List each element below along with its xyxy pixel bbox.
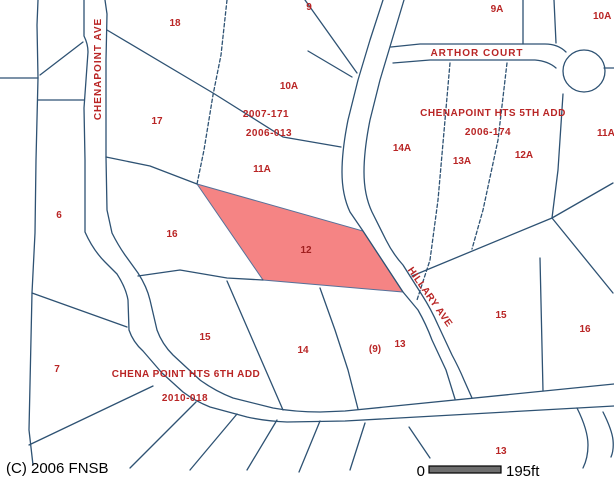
parcel-boundary bbox=[190, 414, 237, 470]
parcel-label-15-right: 15 bbox=[495, 310, 507, 321]
parcel-boundary bbox=[107, 30, 341, 147]
parcel-boundary bbox=[32, 293, 127, 327]
parcel-label-9-paren: (9) bbox=[369, 344, 381, 355]
road-edge bbox=[393, 60, 556, 68]
plat-label-2007-171: 2007-171 bbox=[243, 109, 289, 120]
parcel-label-10a-edge: 10A bbox=[593, 11, 611, 22]
scale-bar-rect bbox=[429, 466, 501, 473]
cul-de-sac bbox=[563, 50, 605, 92]
parcel-boundary bbox=[29, 386, 153, 445]
parcel-label-9a: 9A bbox=[491, 4, 504, 15]
parcel-label-16-left: 16 bbox=[166, 229, 178, 240]
parcel-label-6: 6 bbox=[56, 210, 62, 221]
subdivision-label-6th-add: CHENA POINT HTS 6TH ADD bbox=[112, 369, 261, 380]
parcel-boundary bbox=[130, 402, 196, 468]
scale-bar-zero: 0 bbox=[417, 463, 425, 480]
parcel-boundary bbox=[577, 408, 588, 468]
parcel-label-14a: 14A bbox=[393, 143, 411, 154]
parcel-map: 18 9 9A 10A 10A 17 11A 6 16 12 14A 13A 1… bbox=[0, 0, 614, 480]
parcel-label-15-left: 15 bbox=[199, 332, 211, 343]
street-label-chenapoint-ave: CHENAPOINT AVE bbox=[93, 18, 104, 120]
parcel-label-13-bottom: 13 bbox=[495, 446, 507, 457]
parcel-boundary bbox=[40, 42, 83, 75]
parcel-label-12-highlighted: 12 bbox=[300, 245, 312, 256]
parcel-boundary bbox=[540, 258, 543, 391]
parcel-boundary bbox=[138, 270, 263, 280]
parcel-boundary bbox=[603, 412, 613, 457]
subdivision-label-5th-add: CHENAPOINT HTS 5TH ADD bbox=[420, 108, 566, 119]
parcel-map-viewport[interactable]: 18 9 9A 10A 10A 17 11A 6 16 12 14A 13A 1… bbox=[0, 0, 614, 480]
parcel-12-highlight[interactable] bbox=[197, 184, 403, 292]
parcel-label-10a: 10A bbox=[280, 81, 298, 92]
parcel-label-14: 14 bbox=[297, 345, 309, 356]
plat-label-2010-018: 2010-018 bbox=[162, 393, 208, 404]
parcel-label-12a: 12A bbox=[515, 150, 533, 161]
street-label-arthor-court: ARTHOR COURT bbox=[430, 48, 523, 59]
parcel-boundary bbox=[472, 63, 507, 249]
parcel-label-17: 17 bbox=[151, 116, 163, 127]
parcel-boundary bbox=[305, 0, 357, 73]
copyright-text: (C) 2006 FNSB bbox=[6, 460, 109, 477]
parcel-boundary bbox=[247, 420, 277, 470]
parcel-boundary bbox=[37, 0, 38, 78]
street-label-hillary-ave: HILLARY AVE bbox=[405, 265, 454, 329]
parcel-label-9: 9 bbox=[306, 2, 312, 13]
plat-label-2006-174: 2006-174 bbox=[465, 127, 511, 138]
parcel-label-18: 18 bbox=[169, 18, 181, 29]
parcel-boundary bbox=[106, 157, 197, 184]
parcel-label-16-right: 16 bbox=[579, 324, 591, 335]
parcel-boundary bbox=[299, 421, 320, 472]
parcel-boundary bbox=[227, 281, 283, 410]
parcel-boundary bbox=[320, 288, 358, 409]
parcel-boundary bbox=[552, 218, 613, 293]
parcel-label-11a: 11A bbox=[253, 164, 271, 175]
parcel-boundary bbox=[412, 183, 613, 276]
plat-label-2006-013: 2006-013 bbox=[246, 128, 292, 139]
parcel-boundary bbox=[29, 78, 38, 465]
parcel-label-11a-edge: 11A bbox=[597, 128, 614, 139]
parcel-boundary bbox=[308, 51, 352, 77]
parcel-label-13a: 13A bbox=[453, 156, 471, 167]
scale-bar-distance: 195ft bbox=[506, 463, 540, 480]
parcel-boundary bbox=[350, 423, 365, 470]
parcel-label-13-mid: 13 bbox=[394, 339, 406, 350]
parcel-boundary bbox=[417, 63, 450, 300]
parcel-boundary bbox=[409, 427, 430, 458]
scale-bar: 0 195ft bbox=[417, 463, 541, 480]
parcel-boundary bbox=[554, 0, 556, 43]
parcel-label-7: 7 bbox=[54, 364, 60, 375]
road-edge bbox=[105, 0, 614, 412]
